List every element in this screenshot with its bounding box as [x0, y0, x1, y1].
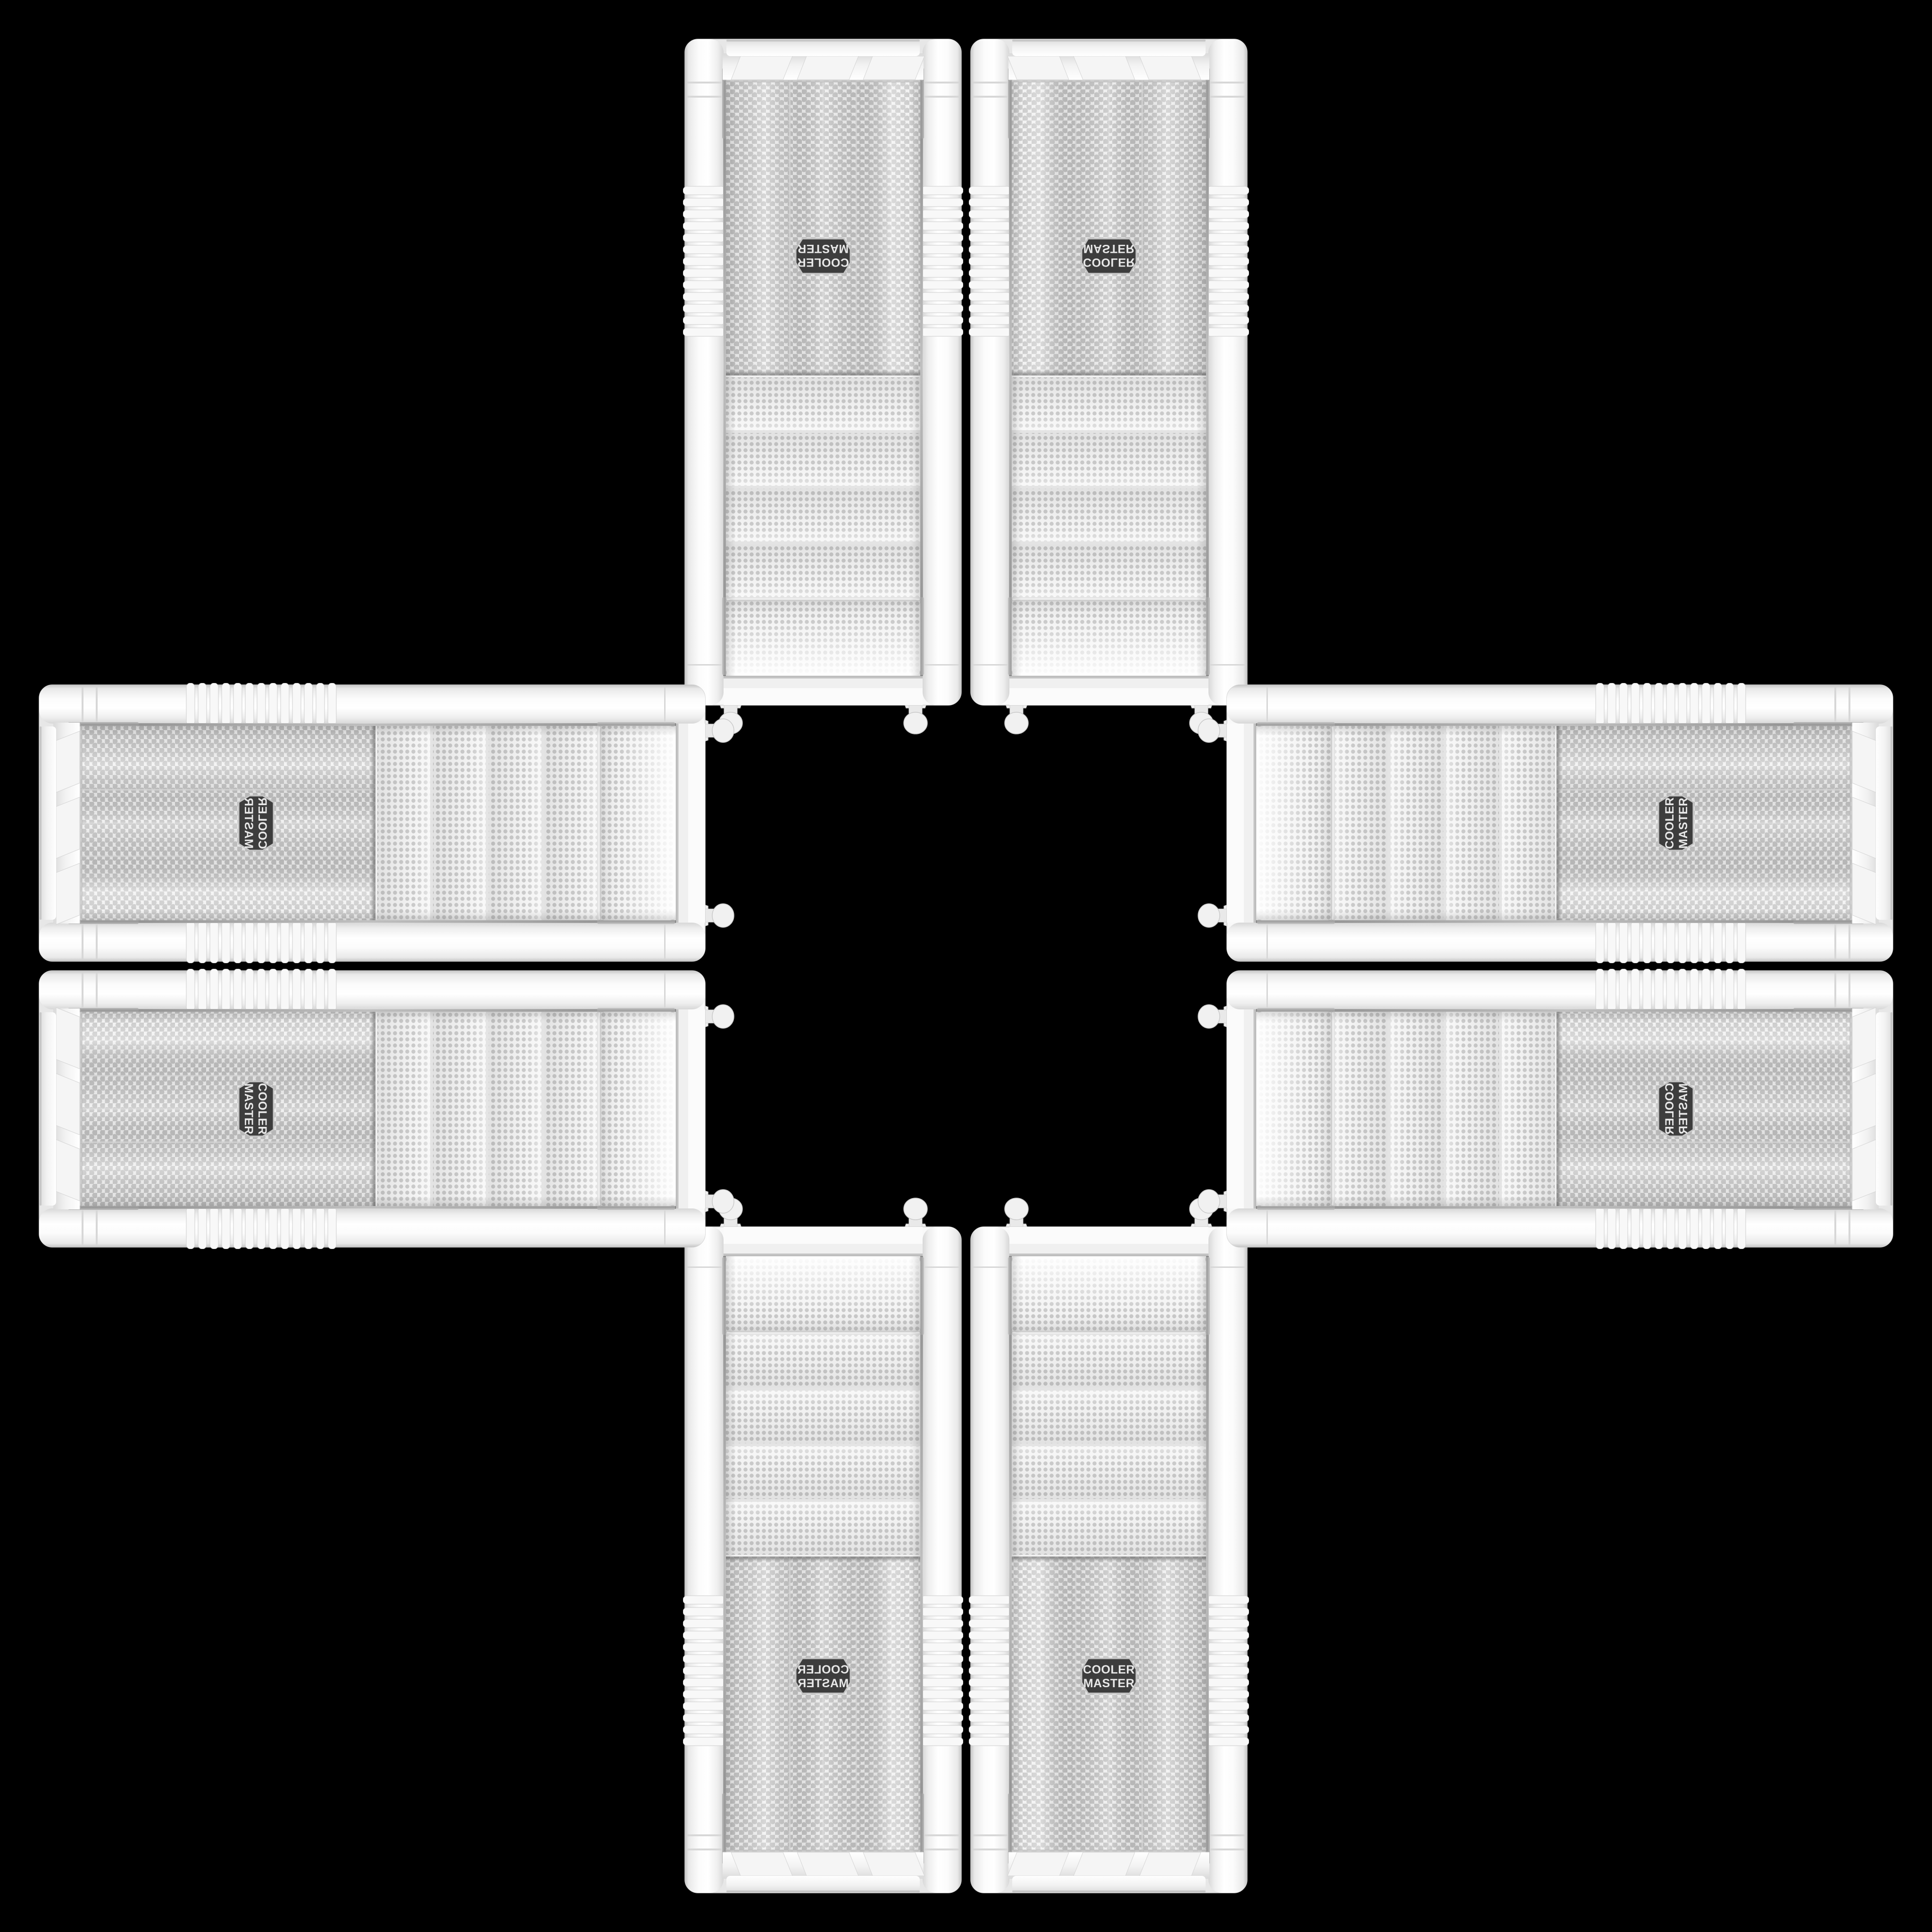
trim-groove	[96, 687, 98, 722]
trim-groove	[82, 1210, 83, 1245]
trim-groove	[1834, 1210, 1836, 1245]
bezel-tab	[731, 1852, 792, 1876]
side-trim-right	[685, 1227, 724, 1893]
cooler-master-case: COOLER MASTER	[969, 1197, 1249, 1895]
side-trim-left	[39, 971, 705, 1009]
top-cap	[687, 724, 705, 923]
bezel-tab	[797, 56, 858, 80]
bezel-tab	[56, 863, 80, 924]
trim-groove	[664, 973, 666, 1008]
trim-groove	[924, 1266, 959, 1268]
case-right-top: COOLER MASTER	[1197, 683, 1895, 963]
side-trim-left	[1227, 923, 1893, 961]
top-cap	[687, 1009, 705, 1208]
top-chrome-line	[1254, 724, 1256, 923]
top-chrome-line	[1254, 1009, 1256, 1208]
trim-groove	[664, 924, 666, 959]
badge-line1: COOLER	[256, 1083, 269, 1135]
cooler-master-case: COOLER MASTER	[683, 1197, 963, 1895]
bottom-bezel	[1849, 723, 1893, 924]
bottom-bezel	[723, 39, 924, 83]
top-cap	[724, 1227, 923, 1245]
cooler-master-badge: COOLER MASTER	[1082, 1658, 1136, 1693]
side-trim-right	[1227, 685, 1893, 724]
trim-groove	[1834, 973, 1836, 1008]
trim-groove	[82, 687, 83, 722]
top-cap-step	[1009, 678, 1208, 688]
trim-groove	[1849, 924, 1850, 959]
trim-groove	[924, 1834, 959, 1836]
trim-groove	[1210, 82, 1245, 83]
mesh-inset-shading	[1009, 1256, 1208, 1851]
trim-groove	[687, 1834, 722, 1836]
top-cap-step	[724, 678, 923, 688]
bezel-tab	[1140, 1852, 1201, 1876]
trim-groove	[687, 664, 722, 666]
top-cap-step	[1009, 1244, 1208, 1254]
top-chrome-line	[724, 1254, 923, 1256]
mesh-inset-shading	[1256, 1009, 1851, 1208]
bezel-tab	[1074, 56, 1135, 80]
cooler-master-case: COOLER MASTER	[1197, 683, 1895, 963]
side-trim-left	[39, 923, 705, 961]
side-trim-left	[1227, 971, 1893, 1009]
side-trim-right	[1208, 39, 1247, 705]
trim-groove	[1210, 664, 1245, 666]
trim-groove	[96, 973, 98, 1008]
bezel-tab	[863, 1852, 924, 1876]
bezel-tab	[1852, 863, 1876, 924]
side-trim-left	[923, 39, 961, 705]
trim-groove	[973, 664, 1008, 666]
badge-line2: MASTER	[798, 1677, 849, 1690]
side-trim-right	[1227, 1208, 1893, 1247]
cooler-master-badge: COOLER MASTER	[1658, 1082, 1693, 1136]
trim-groove	[687, 82, 722, 83]
top-cap	[724, 687, 923, 705]
bezel-tab	[863, 56, 924, 80]
badge-line2: MASTER	[242, 1083, 255, 1135]
bezel-tab	[1852, 731, 1876, 792]
cooler-master-case: COOLER MASTER	[37, 969, 735, 1249]
trim-groove	[1210, 1834, 1245, 1836]
bottom-bezel	[1008, 39, 1209, 83]
side-trim-right	[39, 685, 705, 724]
side-trim-right	[685, 39, 724, 705]
trim-groove	[973, 1834, 1008, 1836]
trim-groove	[1849, 1210, 1850, 1245]
badge-line1: COOLER	[256, 797, 269, 849]
trim-groove	[924, 664, 959, 666]
mesh-inset-shading	[81, 1009, 676, 1208]
cooler-master-badge: COOLER MASTER	[796, 1658, 850, 1693]
top-cap-step	[1244, 1009, 1254, 1208]
bottom-bezel	[39, 1008, 83, 1209]
trim-groove	[1849, 687, 1850, 722]
badge-line2: MASTER	[242, 798, 255, 849]
trim-groove	[1266, 1210, 1268, 1245]
top-cap-step	[678, 1009, 688, 1208]
cooler-master-badge: COOLER MASTER	[796, 239, 850, 274]
trim-groove	[1834, 924, 1836, 959]
trim-groove	[1849, 973, 1850, 1008]
cooler-master-badge: COOLER MASTER	[239, 1082, 274, 1136]
trim-groove	[96, 1210, 98, 1245]
badge-line2: MASTER	[1677, 798, 1690, 849]
side-trim-left	[971, 39, 1009, 705]
trim-groove	[1266, 973, 1268, 1008]
trim-groove	[1210, 1266, 1245, 1268]
badge-line1: COOLER	[1663, 1083, 1676, 1135]
trim-groove	[687, 1849, 722, 1850]
side-trim-right	[39, 1208, 705, 1247]
collage-stage: COOLER MASTER	[0, 0, 1932, 1932]
bezel-tab	[56, 1008, 80, 1069]
bezel-tab	[1852, 797, 1876, 858]
badge-line1: COOLER	[797, 1663, 849, 1676]
trim-groove	[1266, 924, 1268, 959]
side-trim-left	[923, 1227, 961, 1893]
bottom-bezel	[1008, 1849, 1209, 1893]
top-cap	[1009, 1227, 1208, 1245]
trim-groove	[1210, 96, 1245, 98]
top-cap-step	[678, 724, 688, 923]
trim-groove	[1266, 687, 1268, 722]
bottom-bezel	[39, 723, 83, 924]
case-bottom-right: COOLER MASTER	[969, 1197, 1249, 1895]
bezel-tab	[797, 1852, 858, 1876]
bezel-tab	[1008, 1852, 1069, 1876]
top-cap-step	[724, 1244, 923, 1254]
badge-line1: COOLER	[1083, 256, 1135, 269]
case-left-bottom: COOLER MASTER	[37, 969, 735, 1249]
trim-groove	[96, 924, 98, 959]
trim-groove	[664, 1210, 666, 1245]
trim-groove	[973, 1849, 1008, 1850]
bottom-bezel	[723, 1849, 924, 1893]
mesh-inset-shading	[1256, 724, 1851, 923]
bezel-tab	[1852, 1140, 1876, 1201]
mesh-inset-shading	[724, 1256, 923, 1851]
badge-line2: MASTER	[1677, 1083, 1690, 1135]
case-right-bottom: COOLER MASTER	[1197, 969, 1895, 1249]
mesh-inset-shading	[81, 724, 676, 923]
mesh-inset-shading	[724, 81, 923, 676]
trim-groove	[973, 1266, 1008, 1268]
case-bottom-left: COOLER MASTER	[683, 1197, 963, 1895]
bezel-tab	[1852, 1074, 1876, 1135]
top-chrome-line	[1009, 1254, 1208, 1256]
bezel-tab	[56, 731, 80, 792]
case-top-right: COOLER MASTER	[969, 37, 1249, 735]
bezel-tab	[1852, 1008, 1876, 1069]
trim-groove	[687, 1266, 722, 1268]
top-cap-step	[1244, 724, 1254, 923]
bezel-tab	[56, 797, 80, 858]
top-chrome-line	[676, 724, 678, 923]
trim-groove	[973, 82, 1008, 83]
bezel-tab	[56, 1140, 80, 1201]
bezel-tab	[1008, 56, 1069, 80]
cooler-master-badge: COOLER MASTER	[1082, 239, 1136, 274]
top-chrome-line	[676, 1009, 678, 1208]
mesh-inset-shading	[1009, 81, 1208, 676]
trim-groove	[664, 687, 666, 722]
badge-line2: MASTER	[1083, 242, 1135, 255]
trim-groove	[973, 96, 1008, 98]
cooler-master-badge: COOLER MASTER	[239, 796, 274, 850]
top-cap	[1227, 1009, 1245, 1208]
top-cap	[1009, 687, 1208, 705]
bottom-bezel	[1849, 1008, 1893, 1209]
cooler-master-badge: COOLER MASTER	[1658, 796, 1693, 850]
bezel-tab	[1140, 56, 1201, 80]
cooler-master-case: COOLER MASTER	[37, 683, 735, 963]
badge-line1: COOLER	[1663, 797, 1676, 849]
case-left-top: COOLER MASTER	[37, 683, 735, 963]
top-chrome-line	[1009, 676, 1208, 678]
bezel-tab	[731, 56, 792, 80]
cooler-master-case: COOLER MASTER	[1197, 969, 1895, 1249]
top-cap	[1227, 724, 1245, 923]
badge-line2: MASTER	[1083, 1677, 1135, 1690]
trim-groove	[687, 96, 722, 98]
side-trim-right	[1208, 1227, 1247, 1893]
trim-groove	[924, 96, 959, 98]
cooler-master-case: COOLER MASTER	[683, 37, 963, 735]
badge-line1: COOLER	[797, 256, 849, 269]
trim-groove	[924, 82, 959, 83]
cooler-master-case: COOLER MASTER	[969, 37, 1249, 735]
top-chrome-line	[724, 676, 923, 678]
bezel-tab	[1074, 1852, 1135, 1876]
trim-groove	[924, 1849, 959, 1850]
badge-line1: COOLER	[1083, 1663, 1135, 1676]
badge-line2: MASTER	[798, 242, 849, 255]
trim-groove	[82, 973, 83, 1008]
bezel-tab	[56, 1074, 80, 1135]
trim-groove	[1210, 1849, 1245, 1850]
trim-groove	[1834, 687, 1836, 722]
side-trim-left	[971, 1227, 1009, 1893]
case-top-left: COOLER MASTER	[683, 37, 963, 735]
trim-groove	[82, 924, 83, 959]
